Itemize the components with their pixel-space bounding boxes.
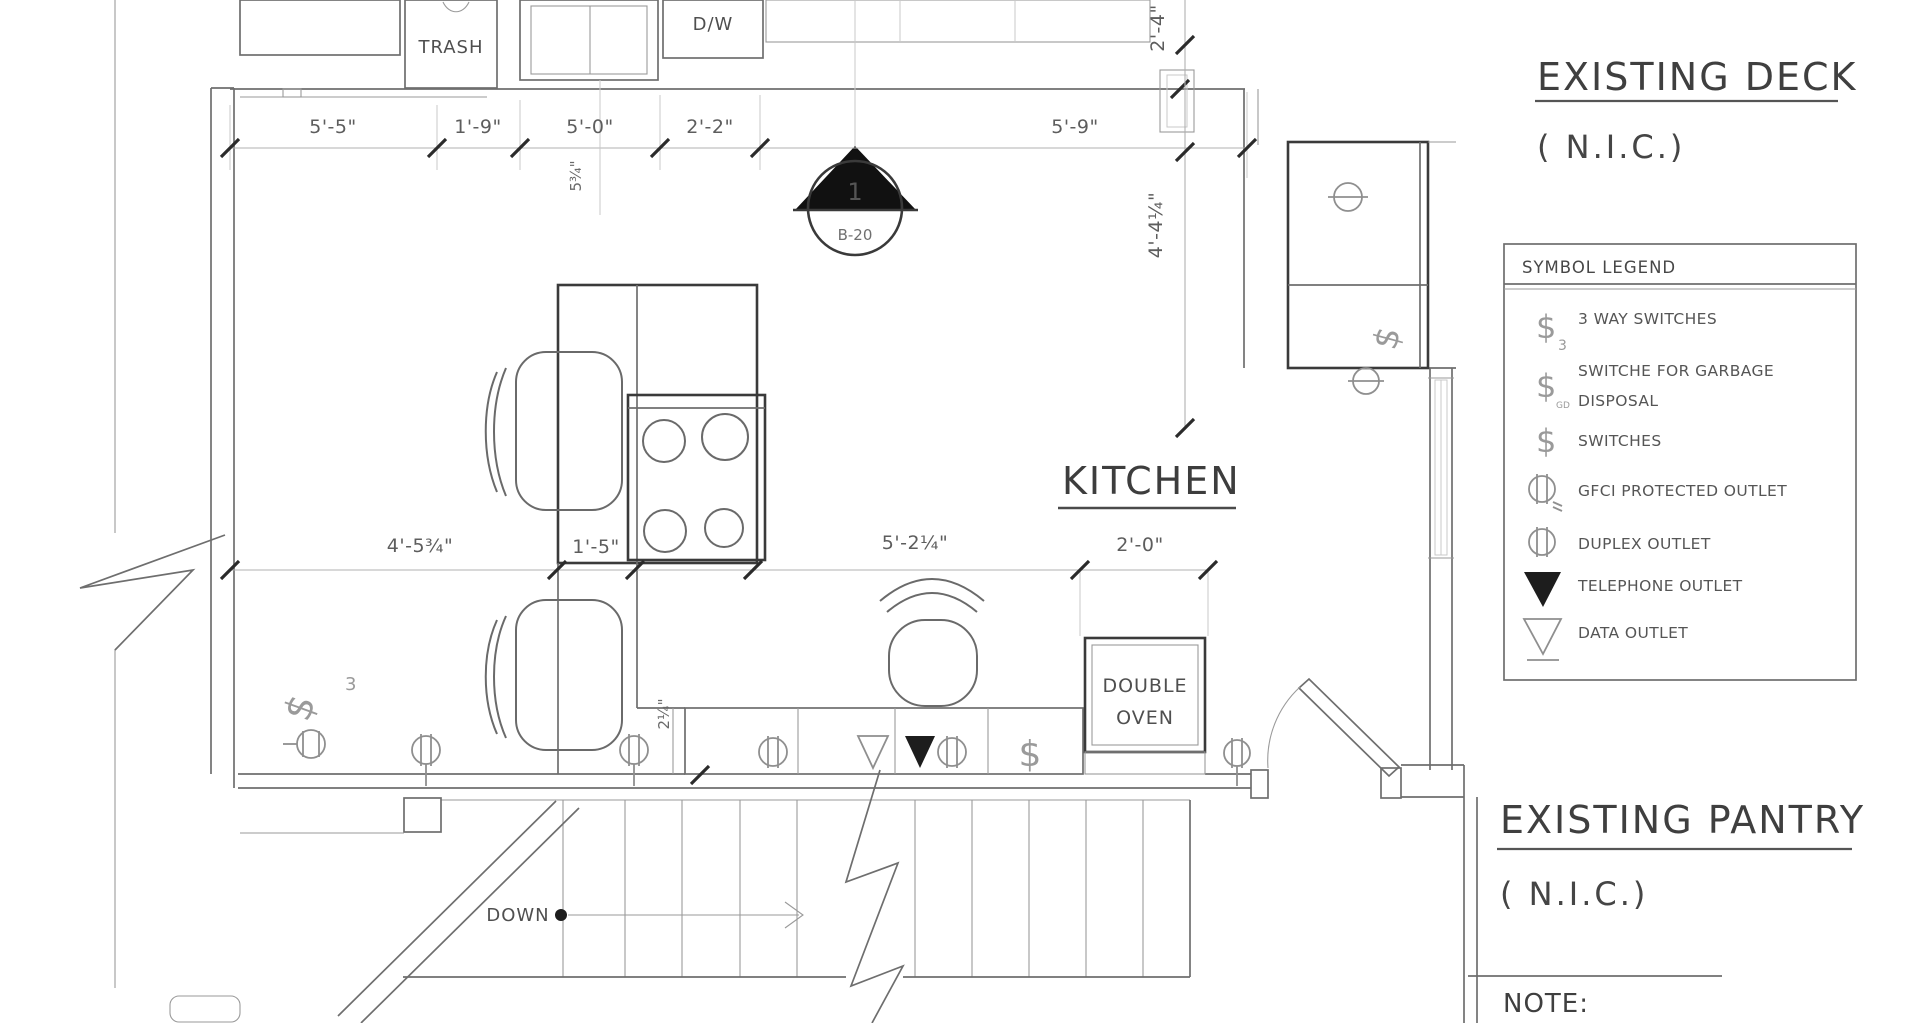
gfci-outlet-symbol bbox=[1529, 474, 1562, 511]
symbol-legend: SYMBOL LEGEND $ 3 3 WAY SWITCHES $ GD SW… bbox=[1504, 244, 1856, 680]
right-wall-window bbox=[1428, 378, 1454, 558]
cabinet-handle-icon bbox=[443, 2, 469, 12]
legend-item-label: DUPLEX OUTLET bbox=[1578, 535, 1711, 553]
window-top bbox=[520, 0, 658, 80]
legend-item-label: DISPOSAL bbox=[1578, 392, 1658, 410]
dimension-label: 5'-0" bbox=[566, 116, 614, 138]
dimension-label: 2'-2" bbox=[686, 116, 734, 138]
section-marker: 1 B-20 bbox=[793, 0, 918, 255]
section-marker-number: 1 bbox=[847, 178, 862, 206]
cabinet bbox=[240, 0, 400, 55]
door-leaf bbox=[1299, 679, 1399, 776]
door-swing bbox=[1251, 679, 1401, 798]
telephone-outlet-symbol bbox=[1524, 572, 1561, 607]
wall-break-line-left bbox=[80, 535, 225, 650]
kitchen-floor-plan: $ bbox=[0, 0, 1920, 1023]
burner-icon bbox=[643, 420, 685, 462]
existing-deck-nic: ( N.I.C.) bbox=[1537, 128, 1685, 166]
down-label: DOWN bbox=[486, 905, 549, 926]
kitchen-island bbox=[558, 285, 765, 563]
tall-cabinet-right: $ bbox=[1288, 142, 1456, 394]
duplex-outlet-symbol bbox=[1529, 527, 1555, 557]
garbage-disposal-switch-subscript: GD bbox=[1556, 401, 1570, 411]
dimension-label: 1'-9" bbox=[454, 116, 502, 138]
legend-item-label: TELEPHONE OUTLET bbox=[1577, 577, 1743, 595]
duplex-outlet-symbol bbox=[1224, 738, 1250, 786]
room-labels: TRASH D/W KITCHEN EXISTING DECK ( N.I.C.… bbox=[417, 14, 1865, 1019]
existing-pantry-nic: ( N.I.C.) bbox=[1500, 875, 1648, 913]
duplex-outlet-symbol bbox=[1348, 368, 1384, 394]
telephone-outlet-symbol bbox=[905, 736, 935, 768]
dimension-lines: 5'-5" 1'-9" 5'-0" 2'-2" 5'-9" 5¾" 4'-5¾"… bbox=[221, 0, 1256, 729]
data-outlet-symbol bbox=[1524, 619, 1561, 654]
double-oven-label: OVEN bbox=[1116, 707, 1174, 729]
legend-title: SYMBOL LEGEND bbox=[1522, 258, 1676, 277]
dimension-label: 4'-5¾" bbox=[387, 535, 453, 557]
lower-counter bbox=[558, 563, 1083, 784]
burner-icon bbox=[702, 414, 748, 460]
switch-symbol: $ bbox=[1365, 323, 1409, 354]
dimension-label: 5'-2¼" bbox=[882, 532, 948, 554]
trash-label: TRASH bbox=[417, 37, 483, 58]
stairs: DOWN bbox=[170, 770, 1190, 1023]
dimension-label: 2¼" bbox=[655, 699, 673, 730]
legend-item-label: SWITCHES bbox=[1578, 432, 1662, 450]
three-way-switch-subscript: 3 bbox=[1558, 338, 1567, 354]
double-oven-label: DOUBLE bbox=[1102, 675, 1187, 697]
window-corner bbox=[1160, 70, 1194, 132]
switch-symbol: $ bbox=[1019, 734, 1042, 775]
three-way-switch-subscript: 3 bbox=[345, 674, 356, 695]
cabinet-run bbox=[766, 0, 1150, 42]
duplex-outlet-symbol bbox=[759, 736, 787, 768]
burner-icon bbox=[705, 509, 743, 547]
three-way-switch-symbol: $ bbox=[275, 689, 325, 727]
legend-item-label: SWITCHE FOR GARBAGE bbox=[1578, 362, 1774, 380]
dimension-label: 1'-5" bbox=[572, 536, 620, 558]
dimension-label: 5'-5" bbox=[309, 116, 357, 138]
legend-item-label: DATA OUTLET bbox=[1578, 624, 1688, 642]
dimension-label: 4'-4¼" bbox=[1145, 192, 1167, 258]
note-label: NOTE: bbox=[1503, 989, 1589, 1019]
existing-deck-title: EXISTING DECK bbox=[1537, 55, 1857, 99]
exterior-walls bbox=[80, 0, 1477, 1023]
duplex-outlet-symbol bbox=[938, 736, 966, 768]
legend-item-label: GFCI PROTECTED OUTLET bbox=[1578, 482, 1787, 500]
door-frame bbox=[404, 798, 441, 832]
duplex-outlet-symbol bbox=[283, 730, 325, 758]
burner-icon bbox=[644, 510, 686, 552]
dimension-label: 5¾" bbox=[567, 161, 585, 192]
chair bbox=[486, 600, 622, 750]
data-outlet-symbol bbox=[858, 736, 888, 768]
duplex-outlet-symbol bbox=[620, 734, 648, 786]
door-jamb bbox=[1381, 768, 1401, 798]
wall-break-line-stairs bbox=[846, 770, 903, 1023]
existing-pantry-title: EXISTING PANTRY bbox=[1500, 798, 1865, 842]
dimension-label: 5'-9" bbox=[1051, 116, 1099, 138]
duplex-outlet-symbol bbox=[412, 734, 440, 786]
cooktop bbox=[628, 395, 765, 560]
chair bbox=[880, 579, 984, 706]
legend-item-label: 3 WAY SWITCHES bbox=[1578, 310, 1717, 328]
duplex-outlet-symbol bbox=[1328, 183, 1368, 211]
door-jamb bbox=[1251, 770, 1268, 798]
door-arc bbox=[1268, 687, 1300, 768]
switch-symbol: $ bbox=[1536, 422, 1556, 460]
dimension-label: 2'-4" bbox=[1147, 4, 1169, 52]
three-way-switch-symbol: $ bbox=[1536, 308, 1556, 346]
stair-arrow-dot bbox=[555, 909, 567, 921]
double-oven: DOUBLE OVEN bbox=[1085, 638, 1205, 774]
kitchen-room-label: KITCHEN bbox=[1062, 459, 1241, 503]
dimension-label: 2'-0" bbox=[1116, 534, 1164, 556]
chair bbox=[486, 352, 622, 510]
dishwasher-label: D/W bbox=[693, 14, 734, 35]
section-marker-reference: B-20 bbox=[838, 226, 873, 244]
garbage-disposal-switch-symbol: $ bbox=[1536, 367, 1556, 405]
